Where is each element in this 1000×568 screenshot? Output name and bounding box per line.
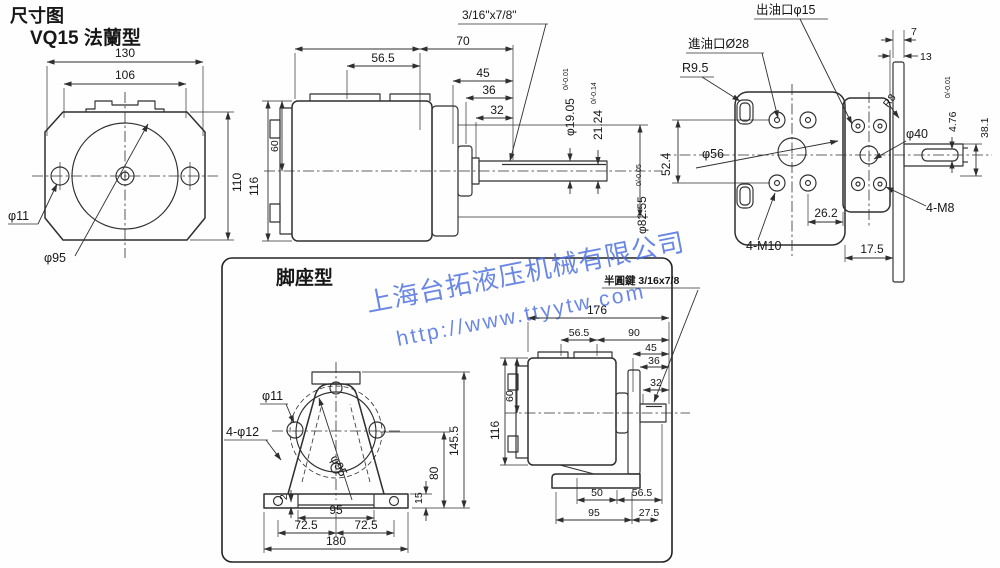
label-foot-key: 半圓鍵 3/16x7/8 [604, 274, 679, 287]
label-foot-phi11: φ11 [262, 389, 283, 403]
dim-foot-60: 60 [504, 390, 516, 402]
dim-shaft-dia: φ19.05 [563, 98, 577, 136]
dim-foot-45: 45 [645, 342, 657, 354]
dim-70: 70 [456, 34, 470, 48]
dim-spigot-dia-tol: 0/-0.05 [636, 164, 643, 186]
label-phi56: φ56 [702, 147, 724, 161]
label-4-m10: 4-M10 [746, 239, 781, 253]
dim-foot-56-5b: 56.5 [632, 487, 653, 499]
dim-15: 15 [413, 492, 425, 504]
rear-view: 出油口φ15 進油口Ø28 R9.5 φ56 52.4 [659, 3, 992, 282]
dim-13: 13 [920, 51, 932, 63]
dim-foot-95: 95 [588, 507, 600, 519]
dim-shaft-dia-tol: 0/-0.01 [563, 68, 570, 90]
dim-38-1: 38.1 [979, 117, 991, 138]
flange-front-view: 130 106 110 φ11 φ95 [8, 46, 244, 265]
dim-32: 32 [490, 103, 504, 117]
label-phi11: φ11 [8, 209, 29, 223]
dim-72-5-right: 72.5 [354, 518, 378, 532]
drawing-canvas: 尺寸图 VQ15 法蘭型 130 106 110 φ11 φ9 [0, 0, 1000, 568]
dim-spigot-dia: φ82.55 [635, 196, 649, 234]
dim-26-2: 26.2 [814, 206, 838, 220]
dim-45: 45 [476, 66, 490, 80]
dim-key-width: 4.76 [947, 111, 959, 132]
dim-foot-27-5: 27.5 [639, 507, 660, 519]
dim-130: 130 [115, 46, 135, 60]
dimension-drawing-page: 尺寸图 VQ15 法蘭型 130 106 110 φ11 φ9 [0, 0, 1000, 568]
dim-foot-50: 50 [591, 487, 603, 499]
dim-52-4: 52.4 [659, 152, 673, 176]
label-key-spec: 3/16"x7/8" [462, 8, 517, 22]
label-r9-5: R9.5 [682, 61, 708, 75]
label-phi95: φ95 [44, 251, 66, 265]
label-4-m8: 4-M8 [926, 201, 955, 215]
foot-section-title: 脚座型 [276, 266, 333, 289]
drawing-header: 尺寸图 VQ15 法蘭型 [10, 5, 141, 49]
dim-key-height-tol: 0/-0.14 [591, 82, 598, 104]
doc-title: 尺寸图 [10, 5, 64, 26]
dim-180: 180 [326, 534, 346, 548]
dim-116-side: 116 [247, 177, 261, 196]
dim-17-5: 17.5 [860, 242, 884, 256]
label-foot-phi95: φ95 [327, 453, 350, 479]
label-inlet-port: 進油口Ø28 [688, 37, 749, 51]
dim-36: 36 [482, 83, 496, 97]
dim-foot-90: 90 [628, 327, 640, 339]
dim-2: 2 [278, 494, 290, 500]
dim-176: 176 [587, 303, 607, 317]
dim-145-5: 145.5 [447, 426, 461, 456]
dim-56-5: 56.5 [371, 51, 395, 65]
dim-7: 7 [911, 26, 917, 38]
dim-foot-116: 116 [488, 421, 502, 440]
foot-front-view: φ11 4-φ12 φ95 145.5 80 15 2 95 72 [224, 362, 470, 553]
label-outlet-port: 出油口φ15 [756, 3, 816, 17]
dim-80: 80 [427, 466, 441, 480]
dim-106: 106 [115, 68, 135, 82]
dim-foot-36: 36 [648, 355, 660, 367]
dim-foot-56-5: 56.5 [569, 327, 590, 339]
dim-110: 110 [230, 173, 244, 192]
label-4-phi12: 4-φ12 [226, 425, 259, 439]
side-view-flange: 3/16"x7/8" 70 56.5 45 36 32 [247, 8, 662, 241]
dim-key-width-tol: 0/-0.01 [945, 76, 952, 98]
label-r8: R8 [881, 92, 899, 110]
dim-foot-32: 32 [650, 377, 662, 389]
dim-60-side: 60 [269, 140, 281, 152]
label-phi40: φ40 [906, 127, 928, 141]
dim-72-5-left: 72.5 [294, 518, 318, 532]
